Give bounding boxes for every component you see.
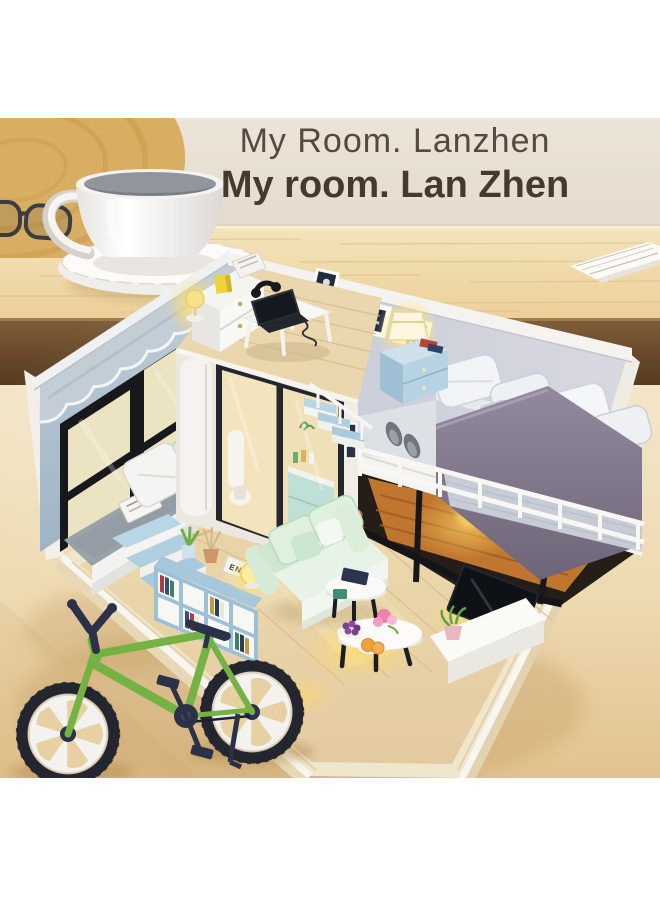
dresser-lamp xyxy=(186,290,204,322)
title-line-2: My room. Lan Zhen xyxy=(221,164,569,206)
top-white-band xyxy=(0,0,660,118)
photo-area: My Room. Lanzhen My room. Lan Zhen xyxy=(0,34,660,793)
title-line-1: My Room. Lanzhen xyxy=(240,122,551,160)
yellow-box xyxy=(214,274,232,294)
green-box xyxy=(333,589,347,599)
white-column xyxy=(180,358,212,516)
product-photo: My Room. Lanzhen My room. Lan Zhen xyxy=(0,0,660,900)
bottom-white-band xyxy=(0,778,660,900)
banner: My Room. Lanzhen My room. Lan Zhen xyxy=(221,122,569,206)
